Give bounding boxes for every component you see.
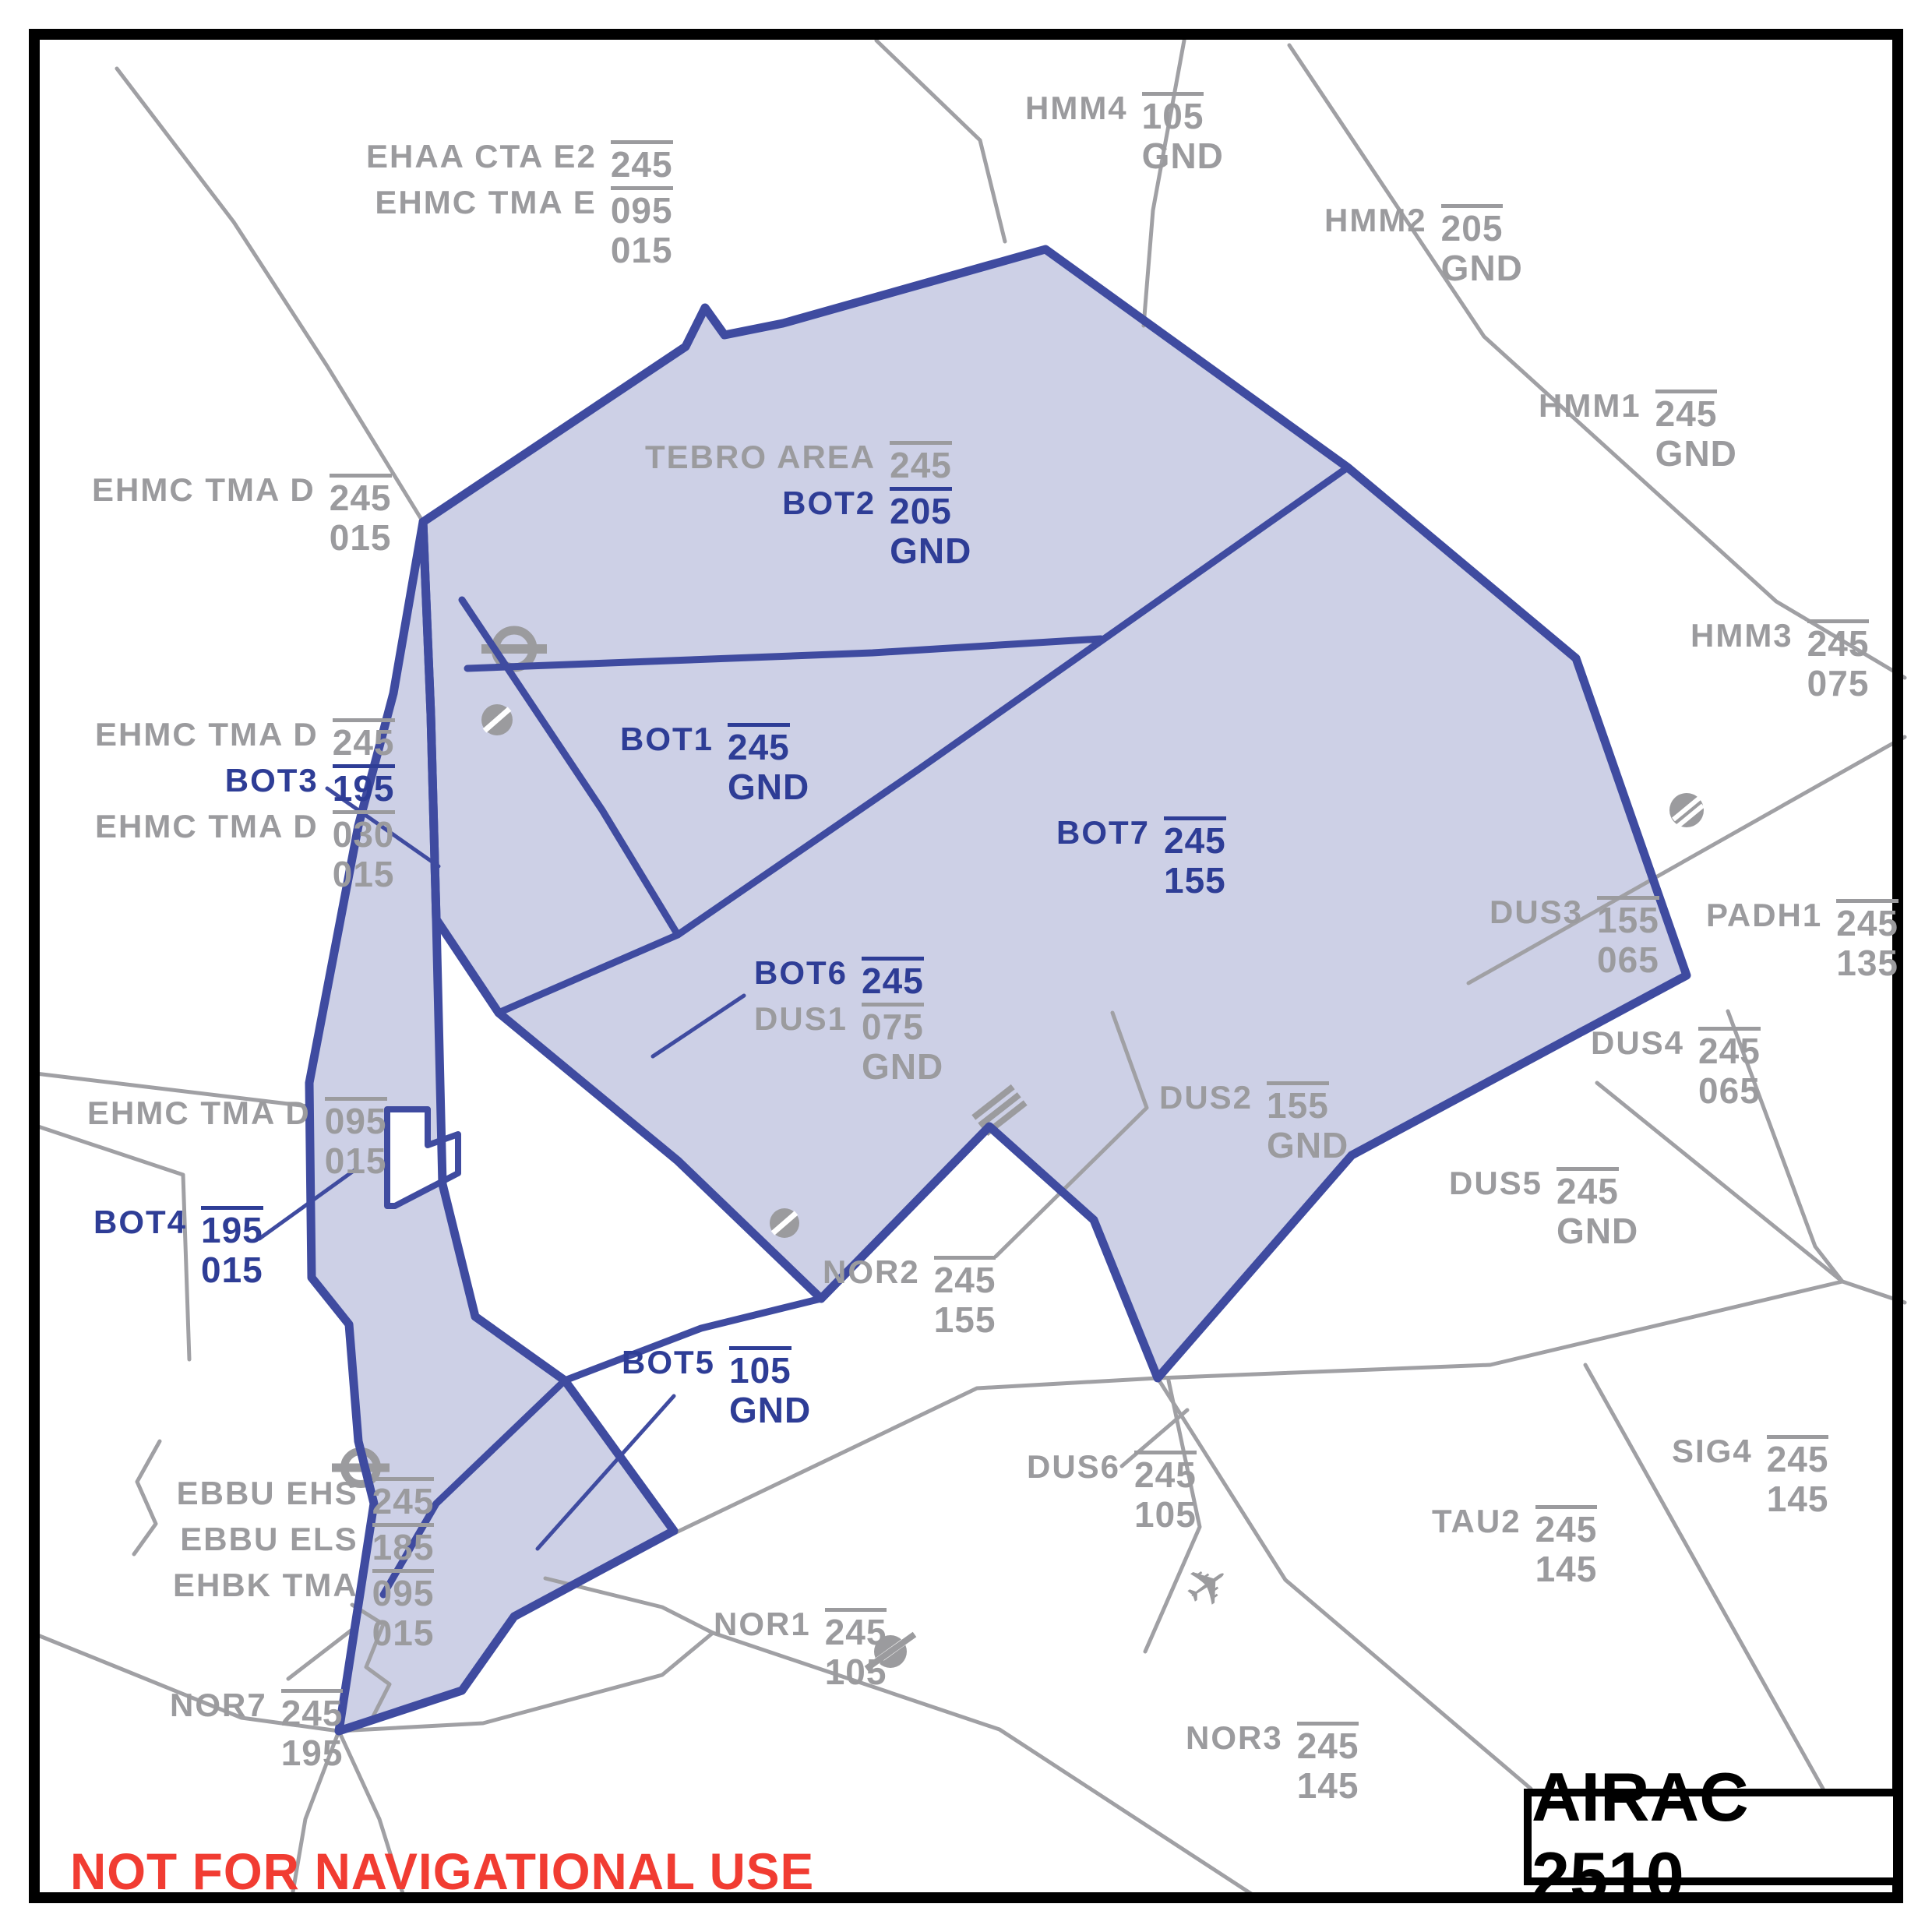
sector-name: BOT2 (645, 487, 876, 520)
sector-label-ehmc-tma-d-lower: EHMC TMA D095015 (87, 1097, 387, 1179)
sector-level: 245 (1134, 1451, 1197, 1493)
sector-name: TAU2 (1432, 1505, 1521, 1539)
sector-level: 105 (1142, 92, 1204, 135)
sector-level: 075 (862, 1003, 924, 1045)
sector-level: 245 (934, 1256, 996, 1299)
sector-label-dus3: DUS3155065 (1490, 896, 1659, 978)
sector-level: 015 (201, 1252, 263, 1289)
sector-name: BOT3 (95, 764, 319, 798)
sector-label-dus4: DUS4245065 (1591, 1027, 1761, 1109)
sector-level: 245 (825, 1608, 887, 1651)
sector-label-bot4: BOT4195015 (93, 1206, 263, 1289)
airac-box: AIRAC 2510 (1524, 1789, 1901, 1885)
sector-level: 245 (1807, 619, 1870, 662)
sector-name: DUS4 (1591, 1027, 1684, 1060)
sector-level: GND (1557, 1213, 1638, 1250)
sector-label-padh1: PADH1245135 (1706, 899, 1899, 982)
sector-level: 095 (325, 1097, 387, 1140)
sector-labels: HMM4105GNDEHAA CTA E2245EHMC TMA E095015… (0, 0, 1932, 1932)
sector-label-hmm3: HMM3245075 (1690, 619, 1869, 702)
sector-name: EHMC TMA D (87, 1097, 311, 1130)
sector-label-hmm1: HMM1245GND (1539, 390, 1737, 472)
sector-level: 245 (728, 723, 790, 766)
sector-level: 245 (1297, 1722, 1359, 1765)
sector-level: 185 (372, 1523, 435, 1566)
sector-label-tebro-bot2: TEBRO AREA245BOT2205GND (645, 441, 971, 569)
sector-level: 245 (1836, 899, 1899, 942)
sector-label-tau2: TAU2245145 (1432, 1505, 1597, 1588)
sector-name: EHMC TMA D (95, 810, 319, 844)
sector-level: GND (1142, 138, 1224, 175)
sector-name: DUS6 (1027, 1451, 1120, 1484)
sector-name: DUS5 (1449, 1167, 1542, 1200)
sector-level: GND (728, 769, 809, 806)
sector-level: 245 (1164, 816, 1226, 859)
sector-level: 245 (1767, 1435, 1829, 1478)
sector-level: GND (1655, 435, 1737, 472)
sector-label-nor7: NOR7245195 (170, 1689, 343, 1772)
sector-label-dus5: DUS5245GND (1449, 1167, 1638, 1250)
sector-level: 145 (1767, 1481, 1829, 1518)
sector-name: NOR7 (170, 1689, 267, 1722)
sector-level: 195 (281, 1735, 344, 1772)
sector-level: 015 (372, 1615, 435, 1652)
sector-level: 015 (333, 856, 395, 893)
sector-level: 245 (372, 1477, 435, 1520)
sector-name: BOT5 (622, 1346, 715, 1380)
sector-name: DUS1 (754, 1003, 848, 1036)
sector-level: 245 (1698, 1027, 1761, 1070)
sector-level: GND (890, 533, 971, 569)
sector-level: 145 (1297, 1768, 1359, 1804)
sector-level: 095 (611, 186, 673, 229)
sector-label-nor3: NOR3245145 (1186, 1722, 1359, 1804)
sector-name: DUS2 (1159, 1081, 1253, 1115)
sector-name: SIG4 (1672, 1435, 1753, 1468)
sector-level: 105 (1134, 1497, 1197, 1533)
sector-label-ehmc-tma-d-upper: EHMC TMA D245015 (92, 474, 392, 556)
sector-name: HMM2 (1324, 204, 1427, 238)
sector-name: HMM1 (1539, 390, 1641, 423)
sector-level: 105 (825, 1654, 887, 1690)
sector-label-bot1: BOT1245GND (620, 723, 809, 806)
sector-level: 195 (201, 1206, 263, 1249)
airac-label: AIRAC 2510 (1532, 1757, 1893, 1916)
sector-label-bot6-dus1: BOT6245DUS1075GND (754, 957, 943, 1085)
sector-level: 095 (372, 1569, 435, 1612)
sector-name: BOT4 (93, 1206, 187, 1239)
sector-level: 135 (1836, 945, 1899, 982)
sector-label-nor2: NOR2245155 (823, 1256, 996, 1338)
sector-label-hmm2: HMM2205GND (1324, 204, 1523, 287)
sector-level: 145 (1535, 1551, 1598, 1588)
sector-name: EHBK TMA (173, 1569, 358, 1602)
sector-level: GND (862, 1049, 943, 1085)
sector-level: 105 (729, 1346, 791, 1389)
sector-level: 155 (1164, 862, 1226, 899)
sector-level: 205 (1441, 204, 1504, 247)
sector-level: 245 (1655, 390, 1718, 432)
sector-level: 065 (1698, 1073, 1761, 1109)
sector-level: GND (1267, 1127, 1349, 1164)
sector-level: 155 (1597, 896, 1659, 939)
sector-label-dus2: DUS2155GND (1159, 1081, 1349, 1164)
sector-level: 075 (1807, 665, 1870, 702)
sector-level: 015 (325, 1143, 387, 1179)
sector-name: HMM4 (1025, 92, 1128, 125)
sector-level: 155 (934, 1302, 996, 1338)
sector-level: 015 (611, 232, 673, 269)
sector-level: 245 (862, 957, 924, 999)
sector-level: GND (729, 1392, 811, 1429)
sector-label-bot3-block: EHMC TMA D245BOT3195EHMC TMA D030015 (95, 718, 395, 893)
sector-name: NOR1 (714, 1608, 811, 1641)
sector-label-dus6: DUS6245105 (1027, 1451, 1197, 1533)
sector-level: 245 (890, 441, 952, 484)
sector-name: EBBU ELS (173, 1523, 358, 1557)
sector-name: PADH1 (1706, 899, 1822, 933)
sector-name: DUS3 (1490, 896, 1583, 929)
sector-level: 015 (330, 520, 392, 556)
sector-name: EHMC TMA D (92, 474, 316, 507)
sector-name: BOT1 (620, 723, 714, 756)
sector-level: 245 (281, 1689, 344, 1732)
sector-level: 245 (333, 718, 395, 761)
sector-name: NOR3 (1186, 1722, 1283, 1755)
sector-label-hmm4: HMM4105GND (1025, 92, 1224, 175)
sector-level: 245 (1557, 1167, 1619, 1210)
sector-name: EBBU EHS (173, 1477, 358, 1511)
sector-level: 195 (333, 764, 395, 807)
sector-name: EHMC TMA D (95, 718, 319, 752)
airspace-chart: ✈ HMM4105GNDEHAA CTA E2245EHMC TMA E0950… (0, 0, 1932, 1932)
sector-level: 245 (1535, 1505, 1598, 1548)
sector-level: 065 (1597, 942, 1659, 978)
sector-label-nor1: NOR1245105 (714, 1608, 887, 1690)
sector-level: 030 (333, 810, 395, 853)
sector-label-sig4: SIG4245145 (1672, 1435, 1828, 1518)
sector-label-bot7: BOT7245155 (1056, 816, 1226, 899)
sector-level: 205 (890, 487, 952, 530)
sector-name: TEBRO AREA (645, 441, 876, 474)
sector-level: 245 (330, 474, 392, 516)
sector-name: NOR2 (823, 1256, 920, 1289)
sector-level: 155 (1267, 1081, 1329, 1124)
sector-label-ebbu: EBBU EHS245EBBU ELS185EHBK TMA095015 (173, 1477, 434, 1652)
warning-text: NOT FOR NAVIGATIONAL USE (70, 1842, 814, 1901)
sector-level: 245 (611, 140, 673, 183)
sector-label-bot5: BOT5105GND (622, 1346, 811, 1429)
sector-label-ehaa-cta: EHAA CTA E2245EHMC TMA E095015 (366, 140, 673, 269)
sector-name: EHMC TMA E (366, 186, 597, 220)
sector-name: BOT6 (754, 957, 848, 990)
sector-name: HMM3 (1690, 619, 1793, 653)
sector-name: BOT7 (1056, 816, 1150, 850)
sector-level: GND (1441, 250, 1523, 287)
sector-name: EHAA CTA E2 (366, 140, 597, 174)
